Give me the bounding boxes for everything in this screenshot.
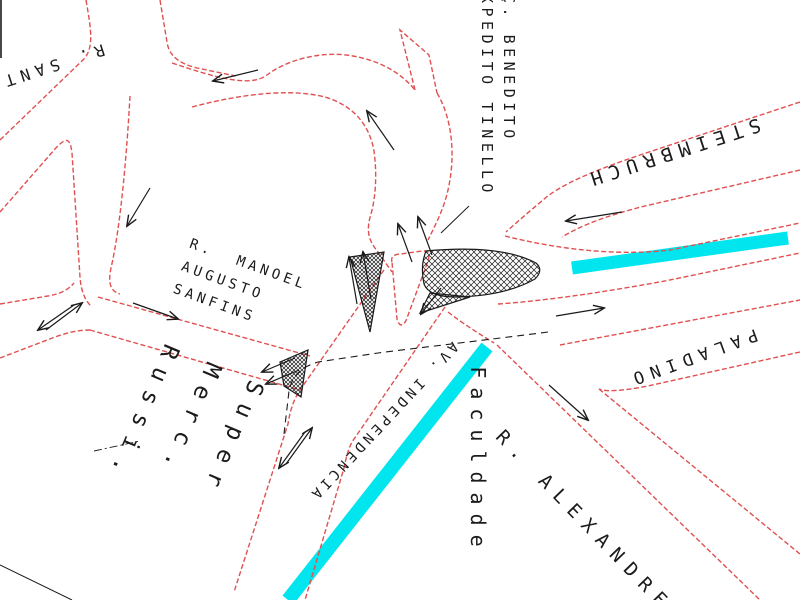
west-arm-south-edge [0,330,90,358]
arrow-paladino-east [556,308,604,316]
arrow-steimbruch-west [566,212,622,221]
sanfins-south-edge [90,330,300,390]
tinello-stub-edge [400,30,437,93]
loop-inner-edge [192,93,392,272]
independencia-west-edge [234,270,384,592]
arrow-loop-west [213,70,258,81]
loop-east-edge [428,93,452,240]
dashed-guide-line [284,332,548,434]
arrow-independencia-up [286,428,312,464]
alexandre-north-edge [599,389,800,554]
west-arm-north-edge [0,283,74,304]
arrow-neck-up-1 [398,224,412,262]
sanfins-north-edge [98,297,310,356]
faculdade-corner-edge [448,312,494,343]
steimbruch-north-edge [506,102,800,232]
alexandre-south-edge [497,345,760,600]
nw-north-arm-left-edge [0,0,91,140]
independencia-cyan-band [288,347,487,600]
nw-west-arm-south-edge [0,140,92,307]
street-map-canvas: R. SANTÇ. BENEDITO XPEDITO TINELLOSTEIMB… [0,0,800,600]
lot-dashdot-line [94,441,140,451]
paladino-south-edge [599,352,800,391]
arrow-sanfins-east [133,303,178,319]
loop-north-edge [172,54,415,90]
steimbruch-south-edge [562,170,800,237]
hatched-island-tail [420,293,470,313]
arrow-southarm-down [127,188,150,226]
arrow-neck-up-2 [418,217,432,255]
nw-north-arm-right-edge [160,0,236,76]
arrow-independencia-down [279,432,305,468]
paladino-north-edge [560,300,800,345]
south-arm-east-edge [110,96,130,294]
corner-boundary-line [0,565,72,600]
hatched-sliver-island [280,350,308,397]
arrow-loop-up [367,111,394,150]
arrow-westarm-down [38,305,74,330]
label-leader-line [441,206,469,233]
arrow-westarm-up [46,303,82,330]
steimbruch-cyan-band [572,238,788,268]
street-map-drawing [0,0,800,600]
